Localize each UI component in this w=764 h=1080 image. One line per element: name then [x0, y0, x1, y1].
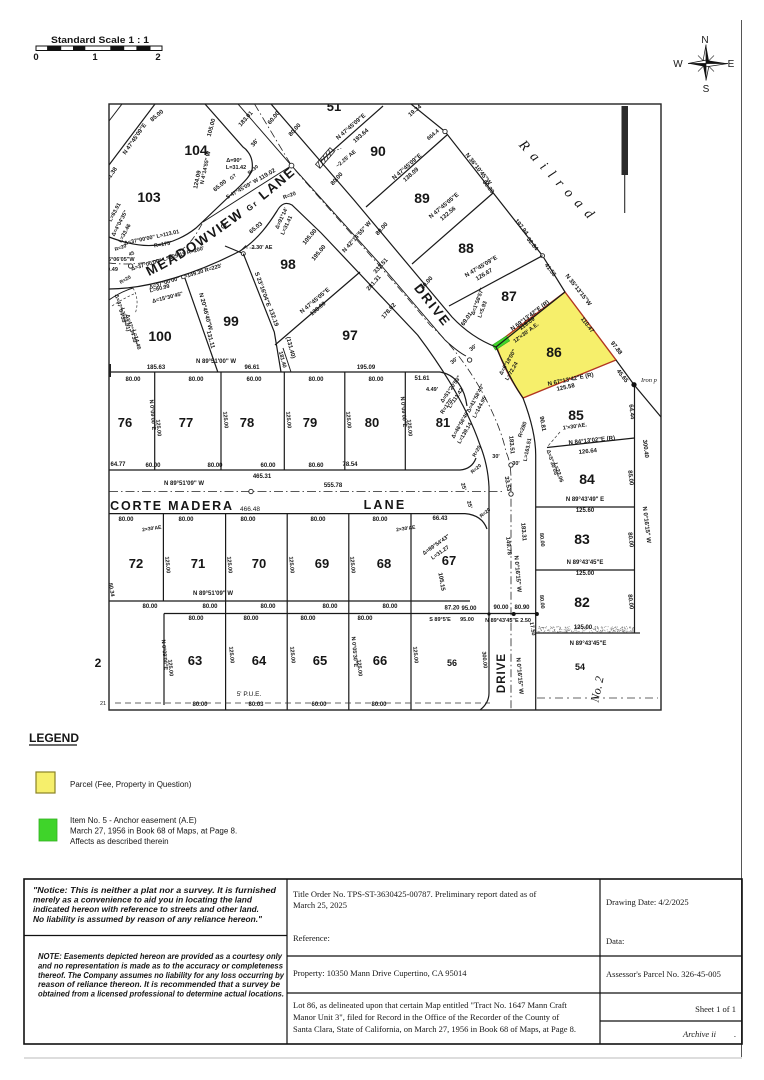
- svg-text:S 89°5'E: S 89°5'E: [429, 617, 451, 623]
- svg-text:83: 83: [574, 531, 590, 547]
- svg-text:N 89°51'09" W: N 89°51'09" W: [164, 481, 204, 487]
- svg-text:80.00: 80.00: [322, 604, 338, 610]
- svg-text:195.09: 195.09: [357, 365, 376, 371]
- svg-text:30': 30': [492, 454, 500, 460]
- svg-text:80.00: 80.00: [357, 616, 373, 622]
- svg-text:125.60: 125.60: [576, 508, 595, 514]
- svg-text:60.00: 60.00: [260, 463, 276, 469]
- svg-text:E: E: [728, 59, 735, 70]
- svg-text:CORTE MADERA: CORTE MADERA: [110, 499, 234, 513]
- svg-text:68: 68: [377, 556, 391, 571]
- svg-text:67: 67: [442, 553, 456, 568]
- svg-text:80.00: 80.00: [538, 595, 545, 609]
- svg-text:N 89°43'45"E: N 89°43'45"E: [570, 641, 607, 647]
- svg-text:79: 79: [303, 415, 317, 430]
- svg-text:Santa Clara, State of Californ: Santa Clara, State of California, on Mar…: [293, 1024, 576, 1034]
- svg-text:80.00: 80.00: [308, 377, 324, 383]
- svg-text:LEGEND: LEGEND: [29, 731, 79, 745]
- svg-text:76: 76: [118, 415, 132, 430]
- svg-text:84: 84: [579, 471, 595, 487]
- svg-text:60.00: 60.00: [145, 463, 161, 469]
- svg-text:104: 104: [184, 142, 208, 158]
- svg-text:2: 2: [155, 52, 160, 63]
- svg-text:72: 72: [129, 556, 143, 571]
- svg-text:N 86°06'05"W: N 86°06'05"W: [99, 257, 135, 263]
- svg-text:96.61: 96.61: [244, 365, 260, 371]
- svg-text:S: S: [703, 84, 710, 95]
- svg-text:W: W: [673, 59, 683, 70]
- svg-text:63: 63: [188, 653, 202, 668]
- svg-text:5' P.U.E.: 5' P.U.E.: [237, 691, 262, 698]
- svg-text:indicated hereon with referenc: indicated hereon with reference to stree…: [33, 904, 259, 914]
- svg-text:56: 56: [447, 658, 457, 668]
- svg-text:Assessor's Parcel No. 326-45-0: Assessor's Parcel No. 326-45-005: [606, 969, 721, 979]
- svg-text:Iron p: Iron p: [640, 377, 658, 384]
- svg-text:80.60: 80.60: [308, 463, 324, 469]
- svg-text:99.49: 99.49: [104, 267, 118, 273]
- svg-text:80.00: 80.00: [178, 517, 194, 523]
- svg-text:89: 89: [414, 190, 430, 206]
- svg-text:71: 71: [191, 556, 205, 571]
- svg-text:51.61: 51.61: [414, 376, 430, 382]
- svg-text:80.00: 80.00: [538, 533, 545, 547]
- svg-text:87.20: 87.20: [444, 606, 460, 612]
- svg-text:465.31: 465.31: [253, 474, 272, 480]
- svg-text:65: 65: [313, 653, 327, 668]
- svg-text:125.00: 125.00: [574, 625, 593, 631]
- svg-text:Drawing Date: 4/2/2025: Drawing Date: 4/2/2025: [606, 897, 689, 907]
- svg-text:80.00: 80.00: [118, 517, 134, 523]
- svg-text:Sheet 1 of 1: Sheet 1 of 1: [695, 1004, 736, 1014]
- svg-text:0: 0: [33, 52, 38, 63]
- svg-text:85: 85: [568, 407, 584, 423]
- svg-text:Parcel (Fee, Property in Quest: Parcel (Fee, Property in Question): [70, 780, 192, 789]
- svg-text:80.00: 80.00: [310, 517, 326, 523]
- svg-text:80.00: 80.00: [188, 377, 204, 383]
- svg-text:Affects as described therein: Affects as described therein: [70, 837, 169, 846]
- svg-text:NOTE: Easements depicted hereo: NOTE: Easements depicted hereon are prov…: [38, 952, 283, 961]
- svg-text:2: 2: [95, 656, 102, 670]
- svg-text:21: 21: [100, 701, 106, 707]
- svg-text:80.00: 80.00: [300, 616, 316, 622]
- svg-text:95.00: 95.00: [460, 617, 474, 623]
- svg-text:95.00: 95.00: [461, 606, 477, 612]
- svg-text:103: 103: [137, 189, 161, 205]
- svg-text:N 89°43'45"E: N 89°43'45"E: [567, 560, 604, 566]
- svg-text:Title Order No. TPS-ST-3630425: Title Order No. TPS-ST-3630425-00787. Pr…: [293, 889, 536, 899]
- svg-text:March 25, 2025: March 25, 2025: [293, 900, 347, 910]
- svg-text:100: 100: [148, 328, 172, 344]
- svg-text:L=31.42: L=31.42: [226, 165, 246, 171]
- svg-text:90.00: 90.00: [493, 605, 509, 611]
- svg-text:obtained from a licensed profe: obtained from a licensed professional to…: [38, 990, 284, 999]
- svg-text:Manor Unit 3", filed for Recor: Manor Unit 3", filed for Record in the O…: [293, 1012, 559, 1022]
- svg-text:reason of reliance thereon. It: reason of reliance thereon. It is recomm…: [38, 980, 281, 989]
- svg-text:.: .: [734, 1029, 736, 1039]
- svg-text:Lot 86, as delineated upon tha: Lot 86, as delineated upon that certain …: [293, 1000, 568, 1010]
- svg-text:80.00: 80.00: [382, 604, 398, 610]
- svg-text:185.63: 185.63: [147, 365, 166, 371]
- svg-text:80.00: 80.00: [207, 463, 223, 469]
- svg-text:80.34: 80.34: [107, 583, 115, 599]
- svg-text:69: 69: [315, 556, 329, 571]
- svg-text:80.00: 80.00: [368, 377, 384, 383]
- svg-text:2.30' AE: 2.30' AE: [252, 245, 273, 251]
- svg-text:80.00: 80.00: [125, 377, 141, 383]
- svg-text:Item No. 5 - Anchor easement (: Item No. 5 - Anchor easement (A.E): [70, 816, 197, 825]
- svg-text:82: 82: [574, 594, 590, 610]
- svg-text:N 89°43'45"E 2.50: N 89°43'45"E 2.50: [485, 618, 531, 624]
- svg-text:88: 88: [458, 240, 474, 256]
- svg-text:87: 87: [501, 288, 517, 304]
- svg-text:80.00: 80.00: [202, 604, 218, 610]
- svg-text:90: 90: [370, 143, 386, 159]
- svg-text:80.00: 80.00: [240, 517, 256, 523]
- svg-text:"Notice: This is neither a pla: "Notice: This is neither a plat nor a su…: [33, 885, 277, 895]
- svg-text:March 27, 1956 in Book 68 of M: March 27, 1956 in Book 68 of Maps, at Pa…: [70, 827, 237, 836]
- svg-text:98: 98: [280, 256, 296, 272]
- svg-text:Standard Scale 1 : 1: Standard Scale 1 : 1: [51, 35, 149, 45]
- svg-text:4.49': 4.49': [426, 387, 439, 393]
- svg-text:66: 66: [373, 653, 387, 668]
- svg-text:60.00: 60.00: [246, 377, 262, 383]
- svg-text:N 89°51'00" W: N 89°51'00" W: [196, 359, 236, 365]
- svg-text:thereof. The Company assumes n: thereof. The Company assumes no liabilit…: [38, 971, 285, 980]
- svg-text:60.00: 60.00: [311, 702, 327, 708]
- svg-text:70: 70: [252, 556, 266, 571]
- svg-text:77: 77: [179, 415, 193, 430]
- svg-text:Δ=90°: Δ=90°: [226, 158, 241, 164]
- svg-text:80.03: 80.03: [248, 702, 264, 708]
- svg-text:N 89°51'09" W: N 89°51'09" W: [193, 591, 233, 597]
- svg-text:Reference:: Reference:: [293, 933, 330, 943]
- svg-text:125.00: 125.00: [576, 571, 595, 577]
- svg-text:99: 99: [223, 313, 239, 329]
- svg-text:64.77: 64.77: [110, 462, 126, 468]
- svg-text:80.00: 80.00: [260, 604, 276, 610]
- svg-text:64: 64: [252, 653, 267, 668]
- svg-text:81: 81: [436, 415, 450, 430]
- svg-text:DRIVE: DRIVE: [496, 653, 508, 693]
- svg-text:30': 30': [512, 461, 520, 467]
- svg-text:80: 80: [365, 415, 379, 430]
- svg-text:66.43: 66.43: [432, 516, 448, 522]
- svg-text:Property: 10350 Mann Drive Cup: Property: 10350 Mann Drive Cupertino, CA…: [293, 968, 467, 978]
- svg-text:78: 78: [240, 415, 254, 430]
- svg-text:N 89°43'49" E: N 89°43'49" E: [566, 497, 604, 503]
- svg-text:555.78: 555.78: [324, 483, 343, 489]
- svg-text:80.00: 80.00: [188, 616, 204, 622]
- svg-text:97: 97: [342, 327, 358, 343]
- svg-text:466.48: 466.48: [240, 506, 260, 513]
- svg-text:Data:: Data:: [606, 936, 624, 946]
- svg-text:merely as a convenience to aid: merely as a convenience to aid you in lo…: [33, 895, 253, 905]
- svg-text:80.00: 80.00: [371, 702, 387, 708]
- svg-text:Archive ii: Archive ii: [682, 1029, 717, 1039]
- svg-text:LANE: LANE: [364, 498, 407, 512]
- svg-text:N: N: [701, 35, 708, 46]
- svg-text:80.00: 80.00: [243, 616, 259, 622]
- svg-text:1: 1: [92, 52, 98, 63]
- svg-text:80.00: 80.00: [142, 604, 158, 610]
- svg-text:54: 54: [575, 662, 585, 672]
- svg-text:80.00: 80.00: [372, 517, 388, 523]
- svg-text:and no representation is made: and no representation is made as to the …: [38, 961, 284, 970]
- svg-text:80.00: 80.00: [192, 702, 208, 708]
- svg-text:No liability is assumed by rea: No liability is assumed by reason of any…: [33, 914, 263, 924]
- svg-text:51: 51: [327, 99, 341, 114]
- svg-text:80.90: 80.90: [514, 605, 530, 611]
- svg-text:78.54: 78.54: [342, 462, 358, 468]
- svg-text:86: 86: [546, 344, 562, 360]
